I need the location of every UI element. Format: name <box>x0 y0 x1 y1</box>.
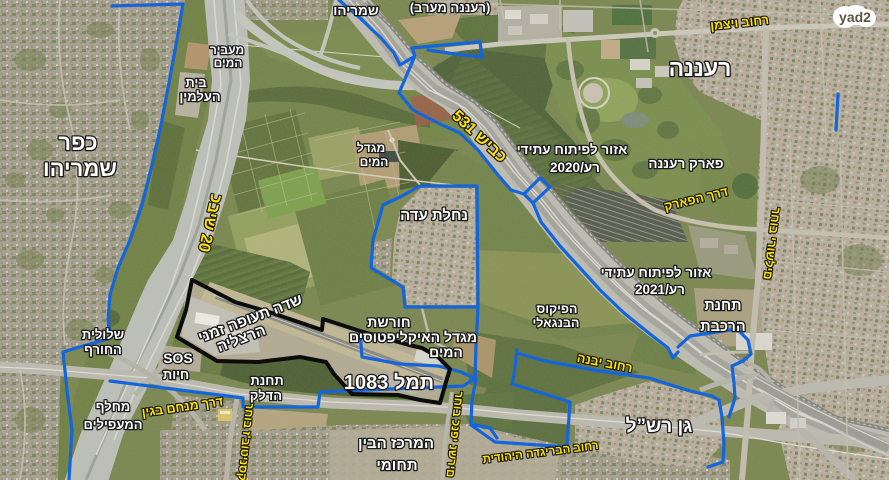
svg-text:תחנת: תחנת <box>250 373 283 388</box>
svg-text:נחלת עדה: נחלת עדה <box>400 207 468 224</box>
svg-text:אזור לפיתוח עתידי: אזור לפיתוח עתידי <box>601 265 712 280</box>
svg-text:החורף: החורף <box>84 342 122 357</box>
svg-text:תחומי: תחומי <box>376 457 417 474</box>
svg-text:SOS: SOS <box>163 350 193 366</box>
svg-text:המעפילים: המעפילים <box>84 417 143 432</box>
svg-text:שלולית: שלולית <box>82 327 124 342</box>
svg-text:מעביר: מעביר <box>210 43 244 57</box>
svg-text:הדלק: הדלק <box>250 388 282 403</box>
svg-text:מגדל: מגדל <box>357 141 385 155</box>
svg-text:שמריהו: שמריהו <box>333 3 379 18</box>
svg-text:שמריהו: שמריהו <box>43 156 117 181</box>
svg-text:כפר: כפר <box>58 130 97 155</box>
svg-text:גן רש”ל: גן רש”ל <box>626 416 693 437</box>
svg-text:רע/2020: רע/2020 <box>550 160 600 175</box>
svg-text:הרכבת: הרכבת <box>700 319 745 335</box>
svg-text:רע/2021: רע/2021 <box>635 282 685 297</box>
svg-text:חורשת: חורשת <box>367 314 410 330</box>
svg-text:אזור לפיתוח עתידי: אזור לפיתוח עתידי <box>517 142 628 157</box>
svg-text:המים: המים <box>429 344 463 360</box>
svg-text:העלמין: העלמין <box>179 89 220 104</box>
svg-text:פארק רעננה: פארק רעננה <box>648 156 723 171</box>
svg-text:רעננה: רעננה <box>669 55 732 81</box>
svg-text:המרכז הבין: המרכז הבין <box>358 435 434 452</box>
svg-text:המים: המים <box>214 56 243 70</box>
svg-text:(רעננה מערב): (רעננה מערב) <box>410 0 491 15</box>
svg-text:תחנת: תחנת <box>704 298 741 314</box>
svg-text:המים: המים <box>360 155 389 169</box>
svg-text:הפיקוס: הפיקוס <box>536 302 577 316</box>
svg-text:חיות: חיות <box>163 367 189 382</box>
svg-text:yad2: yad2 <box>839 9 871 25</box>
svg-text:הבנגאלי: הבנגאלי <box>532 316 579 330</box>
svg-text:בית: בית <box>185 75 206 90</box>
svg-text:מחלף: מחלף <box>96 399 131 414</box>
svg-text:מגדל האיקליפטוסים: מגדל האיקליפטוסים <box>349 329 477 345</box>
svg-text:תמל 1083: תמל 1083 <box>344 372 434 394</box>
